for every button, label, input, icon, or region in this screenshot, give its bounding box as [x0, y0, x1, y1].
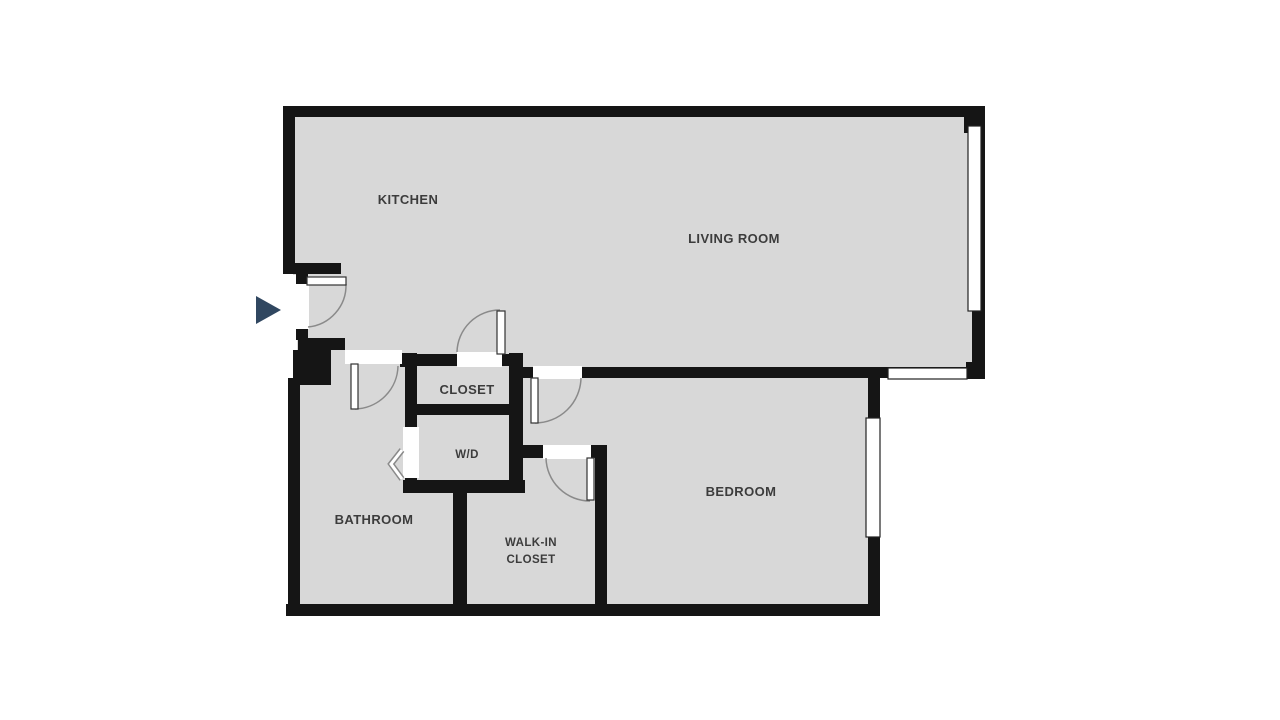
bedroom-door-opening	[533, 366, 582, 379]
label-closet: CLOSET	[439, 382, 494, 397]
label-bathroom: BATHROOM	[335, 512, 414, 527]
floor-lower-rooms	[296, 360, 869, 606]
bedroom-door-leaf	[531, 378, 538, 423]
wall-west-upper	[283, 106, 295, 274]
wall-bottom	[286, 604, 880, 616]
window-bedroom-east	[866, 418, 880, 537]
wall-kitchen-bathroom	[298, 338, 345, 350]
entry-arrow-icon	[256, 296, 281, 324]
wall-bathroom-walkin-divider	[453, 491, 467, 616]
label-bedroom: BEDROOM	[706, 484, 777, 499]
closet-door-leaf	[497, 311, 505, 354]
floor-plan: KITCHEN LIVING ROOM CLOSET W/D BATHROOM …	[0, 0, 1280, 720]
wall-entry-stub-top	[296, 274, 308, 284]
window-living-south	[888, 368, 967, 379]
label-living-room: LIVING ROOM	[688, 231, 780, 246]
closet-door-opening	[457, 352, 502, 367]
entry-door-opening	[294, 284, 309, 329]
walkin-door-leaf	[587, 458, 594, 500]
bathroom-door-leaf	[351, 364, 358, 409]
floor-kitchen-living	[293, 117, 973, 370]
label-kitchen: KITCHEN	[378, 192, 439, 207]
entry-door-leaf	[307, 277, 346, 285]
wall-top	[283, 106, 985, 117]
wall-closet-wd-divider	[405, 404, 523, 415]
label-wd: W/D	[455, 449, 479, 461]
label-walkin-line1: WALK-IN	[505, 537, 557, 549]
window-living-east	[968, 126, 981, 311]
wall-walkin-bedroom-divider	[595, 445, 607, 616]
wall-entry-jog	[283, 263, 341, 274]
wall-west-lower	[288, 378, 300, 616]
floor-plan-canvas: KITCHEN LIVING ROOM CLOSET W/D BATHROOM …	[0, 0, 1280, 720]
bathroom-door-opening	[345, 350, 402, 364]
label-walkin-line2: CLOSET	[506, 554, 555, 566]
wd-door-opening	[403, 427, 419, 478]
walkin-door-opening	[543, 445, 591, 459]
